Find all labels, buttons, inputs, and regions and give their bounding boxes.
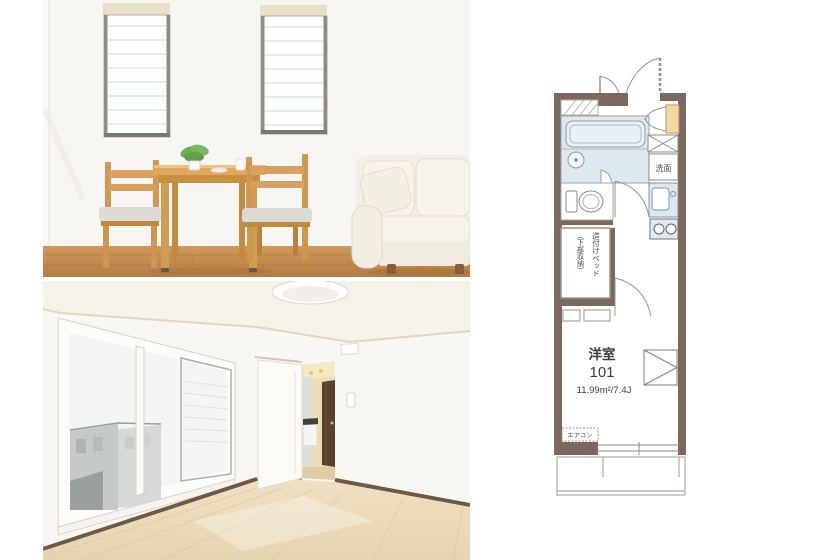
washbasin-label: 洗面 bbox=[656, 163, 672, 173]
ceiling-light bbox=[272, 281, 348, 304]
window-mullion bbox=[136, 346, 144, 496]
entrance-door-swing bbox=[600, 58, 660, 93]
appliance bbox=[304, 425, 317, 445]
bed-label-main: 造付けベッド bbox=[591, 231, 600, 277]
sofa bbox=[352, 155, 470, 274]
room-door-swing bbox=[615, 278, 651, 316]
washbasin: 洗面 bbox=[649, 154, 678, 180]
washer-space-icon bbox=[648, 135, 678, 152]
listing-collage: 洗面 造付けベッド （下部収納） bbox=[0, 0, 840, 560]
doorway bbox=[302, 361, 335, 480]
bed-step bbox=[584, 310, 610, 321]
closet bbox=[645, 105, 679, 133]
window-right bbox=[260, 5, 327, 134]
chair-cushion bbox=[242, 208, 312, 223]
door-handle bbox=[331, 422, 334, 425]
stove bbox=[650, 219, 678, 239]
photo-empty-room bbox=[43, 281, 470, 560]
hall-floor bbox=[302, 467, 335, 480]
floorplan: 洗面 造付けベッド （下部収納） bbox=[540, 50, 700, 505]
light-switch bbox=[347, 393, 355, 407]
room-area: 11.99m²/7.4J bbox=[577, 385, 632, 396]
bed-step bbox=[563, 310, 580, 321]
photo-dining-room bbox=[43, 0, 470, 277]
wall-panel bbox=[341, 344, 359, 355]
aircon: エアコン bbox=[562, 428, 598, 441]
window-left bbox=[103, 3, 170, 137]
kitchen-door-swing bbox=[615, 181, 649, 217]
window-box-icon bbox=[644, 350, 677, 385]
mug bbox=[236, 159, 245, 170]
bathroom bbox=[561, 116, 649, 183]
sink-icon bbox=[652, 188, 669, 210]
downlight bbox=[309, 371, 313, 375]
balcony bbox=[557, 457, 685, 495]
bed-label-sub: （下部収納） bbox=[577, 232, 585, 274]
downlight bbox=[319, 369, 323, 373]
burner-icon bbox=[654, 224, 664, 234]
built-in-bed: 造付けベッド （下部収納） bbox=[561, 228, 610, 321]
toilet-tank bbox=[566, 191, 577, 212]
chair-cushion bbox=[99, 207, 161, 222]
sofa-armrest bbox=[352, 206, 382, 268]
kitchen-counter bbox=[303, 418, 318, 425]
room-number: 101 bbox=[589, 364, 614, 381]
burner-icon bbox=[666, 224, 676, 234]
room-label: 洋室 bbox=[589, 346, 617, 362]
kitchen-sink bbox=[649, 183, 678, 217]
toilet-room bbox=[561, 183, 613, 220]
balcony-window bbox=[598, 442, 680, 455]
entry-hatch bbox=[561, 100, 598, 115]
aircon-label: エアコン bbox=[568, 433, 593, 440]
plate bbox=[211, 168, 227, 173]
